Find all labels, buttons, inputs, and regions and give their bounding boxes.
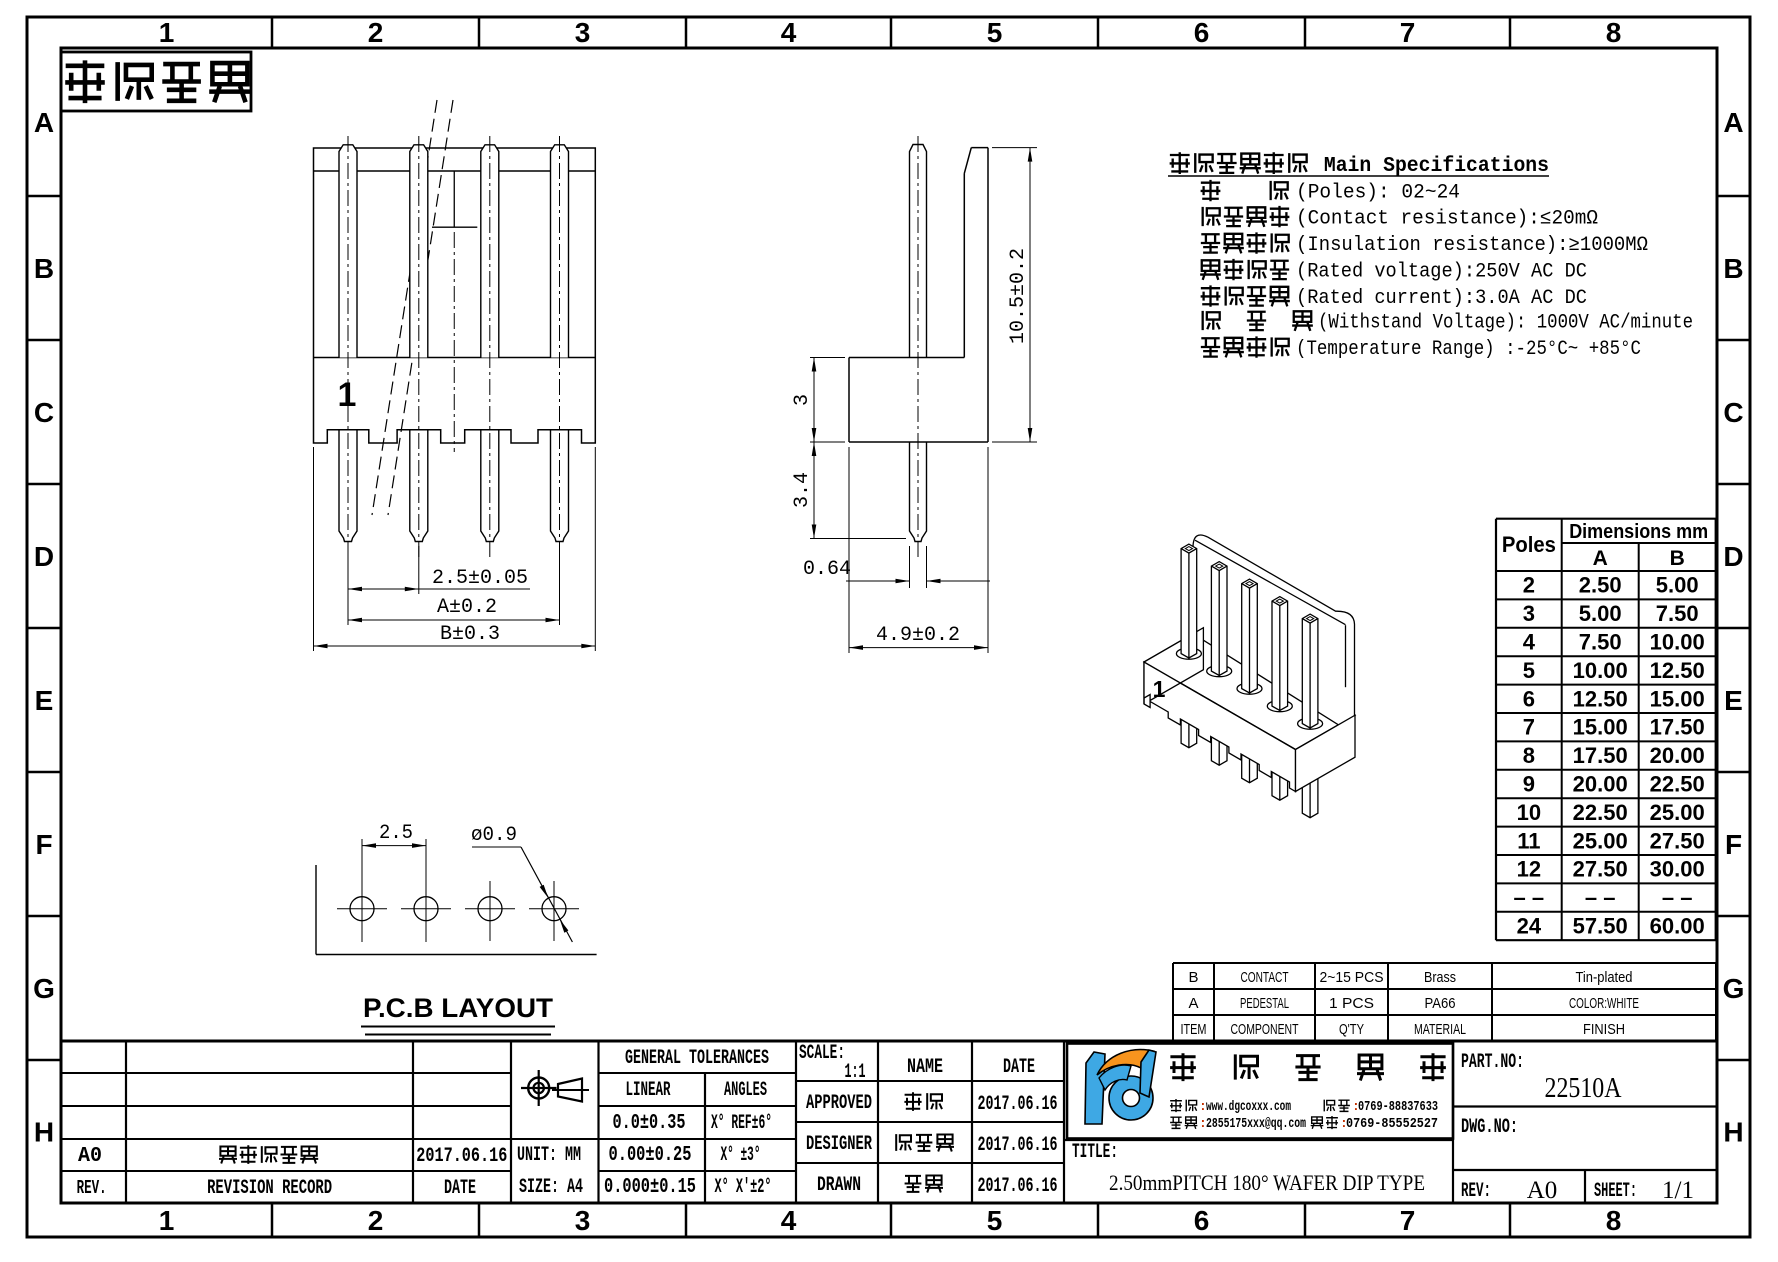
- svg-text:3.4: 3.4: [791, 472, 814, 508]
- svg-text:COMPONENT: COMPONENT: [1231, 1021, 1299, 1038]
- svg-text:SCALE:: SCALE:: [799, 1042, 845, 1065]
- svg-text:1: 1: [338, 376, 357, 414]
- svg-text:SHEET:: SHEET:: [1594, 1180, 1637, 1203]
- svg-text:A0: A0: [1527, 1177, 1558, 1204]
- svg-text:Main Specifications: Main Specifications: [1312, 155, 1549, 178]
- svg-text:0769-88837633: 0769-88837633: [1358, 1099, 1438, 1115]
- svg-text:30.00: 30.00: [1650, 857, 1705, 882]
- svg-text:A: A: [1723, 107, 1743, 138]
- svg-text:0.0±0.35: 0.0±0.35: [613, 1112, 686, 1135]
- svg-text:10: 10: [1517, 800, 1541, 825]
- svg-text:X° REF±6°: X° REF±6°: [711, 1112, 772, 1135]
- svg-text:C: C: [1723, 397, 1743, 428]
- svg-text:4.9±0.2: 4.9±0.2: [876, 624, 960, 647]
- svg-text:DWG.NO:: DWG.NO:: [1461, 1116, 1518, 1139]
- svg-text:LINEAR: LINEAR: [626, 1079, 671, 1102]
- svg-text:www.dgcoxxx.com: www.dgcoxxx.com: [1206, 1099, 1291, 1115]
- svg-text:12.50: 12.50: [1573, 686, 1628, 711]
- svg-text:10.00: 10.00: [1573, 658, 1628, 683]
- svg-text:X° X'±2°: X° X'±2°: [715, 1176, 772, 1199]
- svg-text:REV.: REV.: [77, 1177, 107, 1199]
- svg-text:X° ±3°: X° ±3°: [721, 1144, 761, 1167]
- svg-text:17.50: 17.50: [1650, 715, 1705, 740]
- svg-text:5: 5: [987, 1205, 1003, 1236]
- svg-text:GENERAL TOLERANCES: GENERAL TOLERANCES: [625, 1047, 769, 1070]
- svg-text:B: B: [1723, 253, 1743, 284]
- svg-text:4: 4: [781, 1205, 797, 1236]
- svg-text:CONTACT: CONTACT: [1241, 969, 1289, 986]
- svg-text:ITEM: ITEM: [1181, 1021, 1207, 1038]
- svg-text:11: 11: [1517, 828, 1540, 853]
- svg-text:20.00: 20.00: [1573, 772, 1628, 797]
- svg-text:– –: – –: [1585, 885, 1616, 910]
- svg-text:20.00: 20.00: [1650, 743, 1705, 768]
- svg-text:Dimensions mm: Dimensions mm: [1569, 521, 1708, 543]
- svg-text:4: 4: [781, 17, 797, 48]
- svg-text:E: E: [1724, 685, 1743, 716]
- svg-text:27.50: 27.50: [1573, 857, 1628, 882]
- svg-text:(Poles): 02~24: (Poles): 02~24: [1296, 182, 1460, 205]
- svg-text:B: B: [34, 253, 54, 284]
- svg-text:MATERIAL: MATERIAL: [1414, 1021, 1466, 1038]
- svg-text:5: 5: [1523, 658, 1535, 683]
- svg-text:1: 1: [1153, 676, 1166, 702]
- svg-text:F: F: [1725, 829, 1742, 860]
- svg-text:F: F: [35, 829, 52, 860]
- svg-text:(Rated voltage):250V AC DC: (Rated voltage):250V AC DC: [1296, 261, 1587, 284]
- svg-text:8: 8: [1523, 743, 1535, 768]
- svg-text:DESIGNER: DESIGNER: [806, 1133, 872, 1156]
- svg-text:1: 1: [159, 17, 175, 48]
- svg-text:APPROVED: APPROVED: [806, 1092, 872, 1115]
- svg-text:1 PCS: 1 PCS: [1329, 995, 1374, 1012]
- svg-text:(Withstand Voltage): 1000V AC/: (Withstand Voltage): 1000V AC/minute: [1318, 312, 1693, 335]
- svg-text:C: C: [34, 397, 54, 428]
- svg-text:ANGLES: ANGLES: [724, 1079, 767, 1102]
- svg-text:7: 7: [1523, 715, 1535, 740]
- svg-text:8: 8: [1606, 1205, 1622, 1236]
- svg-text:A±0.2: A±0.2: [437, 596, 497, 619]
- svg-text:A: A: [1189, 995, 1199, 1012]
- svg-text:UNIT: MM: UNIT: MM: [517, 1144, 581, 1167]
- svg-text:25.00: 25.00: [1573, 828, 1628, 853]
- svg-text:15.00: 15.00: [1650, 686, 1705, 711]
- svg-text:H: H: [1723, 1117, 1743, 1148]
- svg-text:3: 3: [575, 17, 591, 48]
- svg-text:24: 24: [1517, 914, 1542, 939]
- svg-text:27.50: 27.50: [1650, 828, 1705, 853]
- svg-text:(Insulation resistance):≥1000M: (Insulation resistance):≥1000MΩ: [1296, 234, 1648, 257]
- svg-text:2: 2: [1523, 573, 1535, 598]
- svg-text:4: 4: [1523, 630, 1536, 655]
- svg-text:0.64: 0.64: [803, 558, 851, 581]
- svg-text:6: 6: [1194, 1205, 1210, 1236]
- svg-text:2.5±0.05: 2.5±0.05: [432, 567, 528, 590]
- svg-text:7: 7: [1400, 17, 1416, 48]
- svg-text:57.50: 57.50: [1573, 914, 1628, 939]
- svg-text:1/1: 1/1: [1662, 1177, 1694, 1204]
- svg-text:2017.06.16: 2017.06.16: [978, 1134, 1058, 1157]
- svg-text:2: 2: [368, 1205, 384, 1236]
- svg-text:P.C.B LAYOUT: P.C.B LAYOUT: [363, 993, 554, 1023]
- svg-text:H: H: [34, 1117, 54, 1148]
- svg-text:22510A: 22510A: [1545, 1073, 1623, 1104]
- svg-text:12: 12: [1517, 857, 1541, 882]
- svg-text:G: G: [1723, 973, 1745, 1004]
- svg-text:6: 6: [1194, 17, 1210, 48]
- svg-text:2~15 PCS: 2~15 PCS: [1320, 969, 1384, 986]
- svg-text:0769-85552527: 0769-85552527: [1346, 1116, 1438, 1132]
- svg-text:TITLE:: TITLE:: [1072, 1141, 1118, 1164]
- svg-text:DATE: DATE: [444, 1177, 476, 1200]
- svg-text:60.00: 60.00: [1650, 914, 1705, 939]
- svg-text:NAME: NAME: [907, 1056, 943, 1079]
- svg-text:PEDESTAL: PEDESTAL: [1240, 995, 1289, 1012]
- svg-text:5.00: 5.00: [1656, 573, 1699, 598]
- svg-text:5.00: 5.00: [1579, 601, 1622, 626]
- svg-text:B: B: [1189, 969, 1199, 986]
- svg-text:A: A: [34, 107, 54, 138]
- svg-text:Q'TY: Q'TY: [1339, 1021, 1364, 1038]
- svg-text:2.50mmPITCH 180° WAFER DIP TYP: 2.50mmPITCH 180° WAFER DIP TYPE: [1109, 1170, 1425, 1195]
- svg-text:A0: A0: [78, 1145, 102, 1168]
- svg-text:0.00±0.25: 0.00±0.25: [609, 1144, 692, 1167]
- svg-text:2017.06.16: 2017.06.16: [416, 1145, 507, 1168]
- svg-text:17.50: 17.50: [1573, 743, 1628, 768]
- svg-text:9: 9: [1523, 772, 1535, 797]
- svg-text:2: 2: [368, 17, 384, 48]
- svg-text:ø0.9: ø0.9: [471, 824, 517, 847]
- svg-text:2855175xxx@qq.com: 2855175xxx@qq.com: [1206, 1116, 1306, 1132]
- svg-text:– –: – –: [1662, 885, 1693, 910]
- svg-text:– –: – –: [1514, 885, 1545, 910]
- svg-text:PART.NO:: PART.NO:: [1461, 1051, 1524, 1074]
- svg-text:10.00: 10.00: [1650, 630, 1705, 655]
- svg-text:(Contact resistance):≤20mΩ: (Contact resistance):≤20mΩ: [1296, 208, 1598, 231]
- svg-text:Brass: Brass: [1424, 969, 1456, 986]
- svg-text:REVISION RECORD: REVISION RECORD: [207, 1177, 332, 1200]
- svg-text:D: D: [34, 541, 54, 572]
- svg-text:B±0.3: B±0.3: [440, 623, 500, 646]
- svg-text:2.50: 2.50: [1579, 573, 1622, 598]
- svg-text:1:1: 1:1: [845, 1061, 866, 1084]
- svg-text:8: 8: [1606, 17, 1622, 48]
- svg-text:REV:: REV:: [1461, 1180, 1491, 1203]
- svg-text:DATE: DATE: [1003, 1056, 1035, 1079]
- svg-text:10.5±0.2: 10.5±0.2: [1007, 248, 1030, 344]
- svg-text:E: E: [35, 685, 54, 716]
- svg-text:7: 7: [1400, 1205, 1416, 1236]
- svg-text:Tin-plated: Tin-plated: [1576, 969, 1633, 986]
- svg-text:2017.06.16: 2017.06.16: [978, 1093, 1058, 1116]
- svg-text:2.5: 2.5: [379, 822, 413, 845]
- svg-text:Poles: Poles: [1502, 532, 1556, 557]
- svg-text:SIZE: A4: SIZE: A4: [519, 1176, 583, 1199]
- svg-text:FINISH: FINISH: [1583, 1021, 1625, 1038]
- svg-text:2017.06.16: 2017.06.16: [978, 1175, 1058, 1198]
- svg-text:22.50: 22.50: [1573, 800, 1628, 825]
- svg-text:7.50: 7.50: [1656, 601, 1699, 626]
- svg-text:5: 5: [987, 17, 1003, 48]
- svg-text:B: B: [1670, 547, 1685, 570]
- svg-text:15.00: 15.00: [1573, 715, 1628, 740]
- svg-text:12.50: 12.50: [1650, 658, 1705, 683]
- svg-text:0.000±0.15: 0.000±0.15: [604, 1176, 696, 1199]
- svg-text:25.00: 25.00: [1650, 800, 1705, 825]
- svg-text:G: G: [33, 973, 55, 1004]
- svg-text:1: 1: [159, 1205, 175, 1236]
- svg-text:D: D: [1723, 541, 1743, 572]
- svg-text:(Temperature Range) :-25°C~ +8: (Temperature Range) :-25°C~ +85°C: [1296, 338, 1641, 361]
- svg-text:A: A: [1593, 547, 1608, 570]
- svg-text:3: 3: [1523, 601, 1535, 626]
- svg-text:7.50: 7.50: [1579, 630, 1622, 655]
- svg-text:DRAWN: DRAWN: [817, 1174, 861, 1197]
- svg-text:3: 3: [791, 394, 814, 406]
- svg-text:22.50: 22.50: [1650, 772, 1705, 797]
- svg-text:3: 3: [575, 1205, 591, 1236]
- svg-text:PA66: PA66: [1425, 995, 1456, 1012]
- svg-text:(Rated current):3.0A AC DC: (Rated current):3.0A AC DC: [1296, 287, 1587, 310]
- svg-text:6: 6: [1523, 686, 1535, 711]
- svg-text:COLOR:WHITE: COLOR:WHITE: [1569, 995, 1639, 1012]
